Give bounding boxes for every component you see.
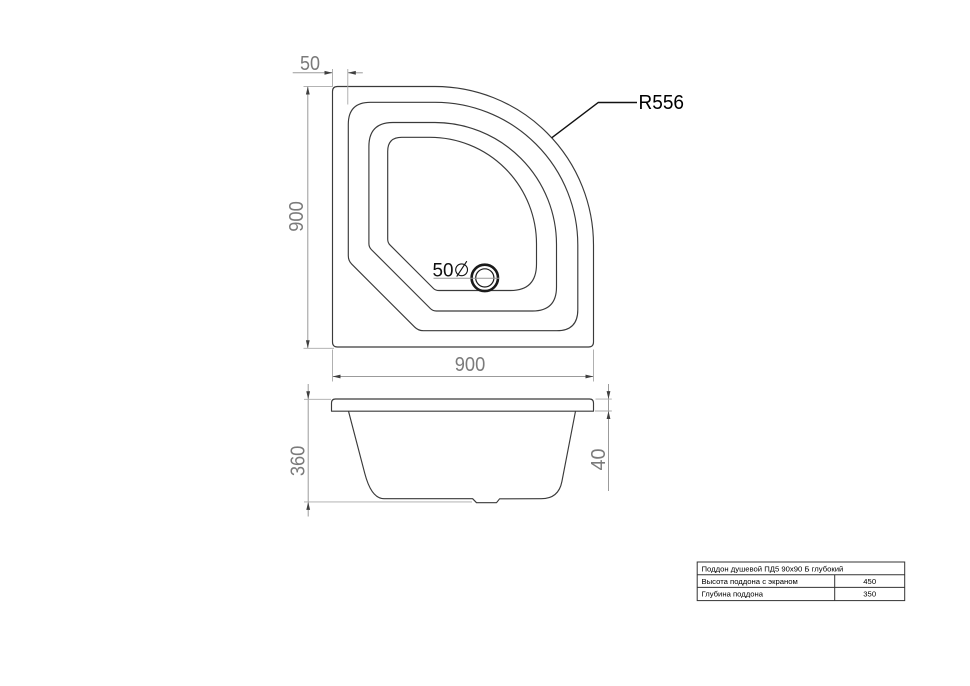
svg-text:360: 360: [287, 446, 309, 477]
svg-text:900: 900: [286, 201, 308, 232]
svg-text:Глубина поддона: Глубина поддона: [702, 590, 764, 599]
svg-text:900: 900: [455, 354, 486, 376]
svg-text:Поддон душевой ПД5 90x90 Б глу: Поддон душевой ПД5 90x90 Б глубокий: [702, 564, 844, 573]
svg-text:40: 40: [588, 449, 610, 471]
svg-text:450: 450: [863, 577, 876, 586]
svg-text:50: 50: [433, 259, 454, 281]
svg-text:350: 350: [863, 590, 876, 599]
svg-text:50: 50: [300, 53, 320, 75]
svg-text:R556: R556: [639, 92, 685, 114]
svg-text:Высота поддона с экраном: Высота поддона с экраном: [702, 577, 798, 586]
